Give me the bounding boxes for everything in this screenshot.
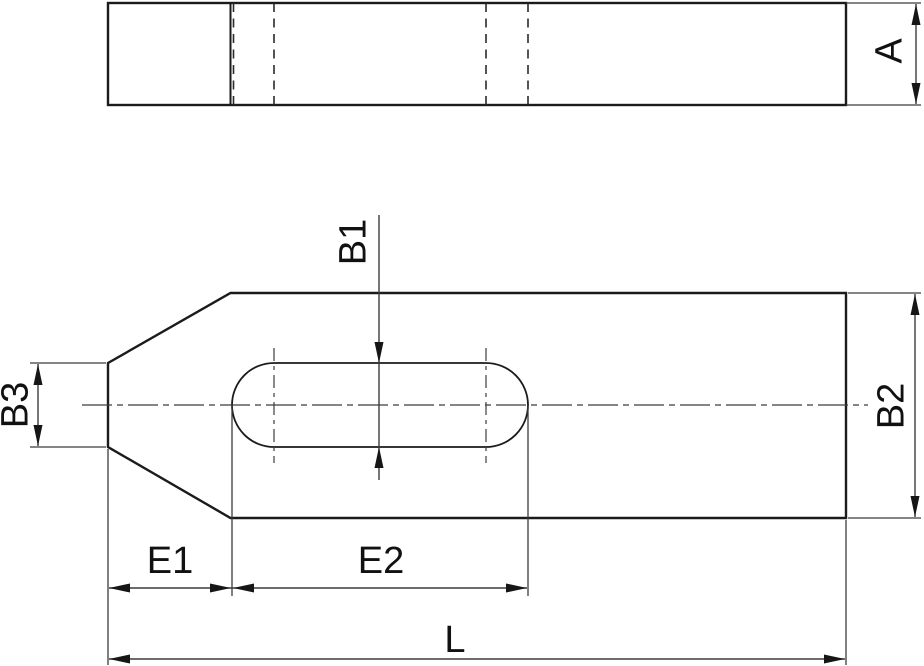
dim-e2-arrow-right (506, 584, 527, 593)
dim-e2-arrow-left (233, 584, 254, 593)
technical-drawing: A B1 B3 (0, 0, 924, 666)
drawing-svg: A B1 B3 (0, 0, 924, 666)
dim-b1-arrow-up (375, 447, 384, 468)
dim-a-label: A (868, 38, 910, 64)
dim-e1-arrow-left (109, 584, 130, 593)
dim-e1-label: E1 (147, 540, 193, 582)
dim-b3-label: B3 (0, 382, 36, 428)
dim-b2-arrow-down (911, 496, 920, 517)
dimension-b1: B1 (332, 215, 383, 480)
dim-a-arrow-down (912, 83, 921, 104)
side-view-body-outline (108, 3, 846, 105)
dim-e2-label: E2 (358, 540, 404, 582)
dim-b1-arrow-down (375, 342, 384, 363)
dim-l-arrow-left (109, 655, 130, 664)
dim-l-arrow-right (824, 655, 845, 664)
dimension-a: A (846, 3, 921, 105)
side-view (108, 3, 846, 105)
plan-view (82, 293, 868, 518)
dim-a-arrow-up (912, 4, 921, 25)
dimension-e1-e2-l: E1 E2 L (108, 406, 846, 665)
dim-b2-label: B2 (870, 383, 912, 429)
dim-b1-label: B1 (332, 219, 374, 265)
dim-e1-arrow-right (210, 584, 231, 593)
dim-b2-arrow-up (911, 294, 920, 315)
dim-l-label: L (444, 619, 465, 661)
